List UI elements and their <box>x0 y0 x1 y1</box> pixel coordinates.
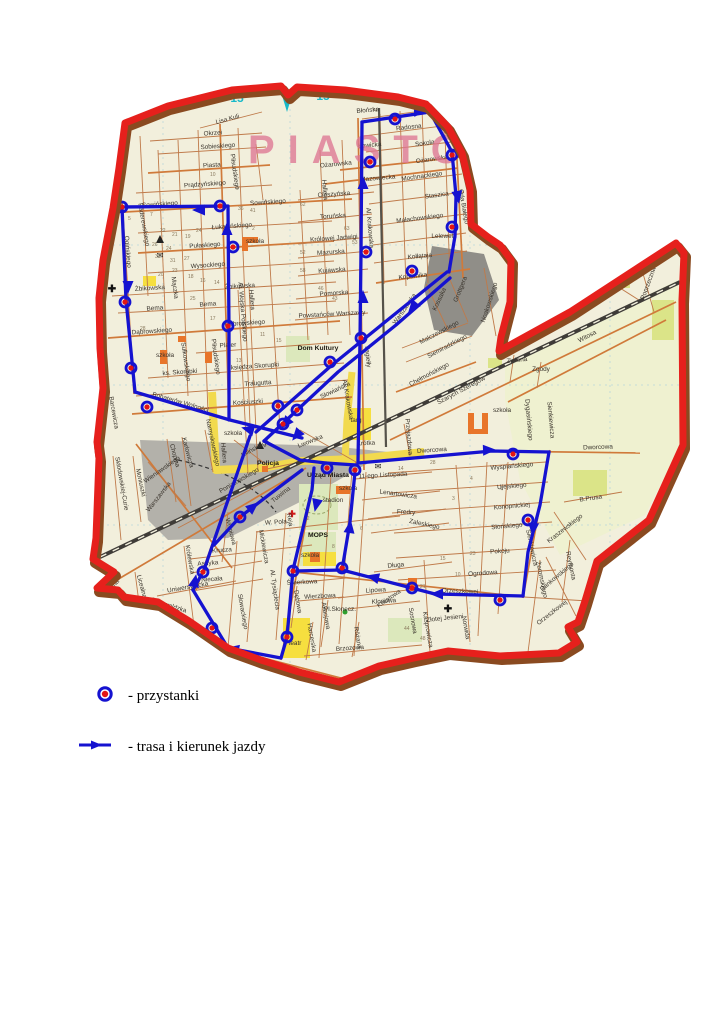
bus-stop-symbol-icon <box>96 685 114 708</box>
street-label: Okrzei <box>203 129 222 137</box>
house-number: 15 <box>276 338 282 344</box>
house-number: 44 <box>404 626 410 632</box>
house-number: 53 <box>352 240 358 246</box>
house-number: 36 <box>238 206 244 212</box>
bus-stop-center <box>510 451 515 456</box>
bus-stop-center <box>525 517 530 522</box>
bus-stop-center <box>409 268 414 273</box>
house-number: 17 <box>210 316 216 322</box>
house-number: 33 <box>155 254 161 260</box>
street-label: Dworcowa <box>583 443 614 451</box>
house-number: 20 <box>158 272 164 278</box>
street-label: Fredry <box>397 508 417 516</box>
street-label: Bema <box>146 304 164 312</box>
street-label: szkoła <box>493 407 512 414</box>
bus-stop-center <box>284 634 289 639</box>
legend-item-stops: - przystanki <box>96 685 199 708</box>
house-number: 8 <box>332 544 335 550</box>
street-label: stadion <box>323 497 344 504</box>
house-number: 58 <box>300 268 306 274</box>
bus-stop-center <box>230 244 235 249</box>
house-number: 6 <box>360 526 363 532</box>
poi-label: Policja <box>257 460 279 467</box>
bus-stop-center <box>409 585 414 590</box>
house-number: 18 <box>188 274 194 280</box>
house-number: 23 <box>172 268 178 274</box>
poi-label: Dom Kultury <box>298 345 339 352</box>
building <box>178 336 186 342</box>
building <box>468 429 488 434</box>
route-arrow-symbol-icon <box>78 738 114 757</box>
bus-stop-center <box>352 467 357 472</box>
house-number: 3 <box>452 496 455 502</box>
bus-stop-center <box>363 249 368 254</box>
house-number: 41 <box>250 208 256 214</box>
house-number: 22 <box>160 228 166 234</box>
house-number: 11 <box>260 332 265 338</box>
bus-stop-center <box>275 403 280 408</box>
house-number: 7 <box>150 212 153 218</box>
bus-stop-center <box>200 569 205 574</box>
bus-stop-center <box>449 224 454 229</box>
house-number: 5 <box>128 216 131 222</box>
bus-stop-center <box>324 465 329 470</box>
bus-stop-center <box>237 514 242 519</box>
bus-stop-center <box>392 116 397 121</box>
house-number: 48 <box>420 636 426 642</box>
street-label: szkoła <box>246 238 265 245</box>
house-number: 52 <box>300 250 306 256</box>
house-number: 25 <box>190 296 196 302</box>
post-office-icon: ✉ <box>375 462 382 471</box>
house-number: 62 <box>300 202 306 208</box>
street-label: szkoła <box>224 430 243 437</box>
house-number: 28 <box>430 460 436 466</box>
street-label: Bema <box>199 300 217 308</box>
church-cross-icon: ✚ <box>108 284 117 295</box>
piastow-town-map: ✚✚✚✉✉22211926243331272320181614752410426… <box>0 0 724 1024</box>
legend-item-route: - trasa i kierunek jazdy <box>78 738 265 757</box>
house-number: 31 <box>170 258 176 264</box>
house-number: 23 <box>470 551 476 557</box>
house-number: 10 <box>455 572 461 578</box>
map-title: PIASTÓW <box>248 126 526 172</box>
house-number: 15 <box>440 556 446 562</box>
bus-stop-center <box>497 597 502 602</box>
house-number: 19 <box>185 234 191 240</box>
bus-stop-center <box>209 625 214 630</box>
bus-stop-center <box>280 421 285 426</box>
street-label: Zgody <box>532 366 551 373</box>
street-label: Długa <box>387 561 405 569</box>
street-label: szkoła <box>301 552 320 559</box>
street-label: Piasta <box>203 161 222 169</box>
building <box>205 352 212 363</box>
bus-stop-center <box>367 159 372 164</box>
bus-stop-center <box>144 404 149 409</box>
street-label: Krucza <box>212 546 233 554</box>
legend-stops-label: - przystanki <box>128 688 199 705</box>
bus-stop-center <box>290 568 295 573</box>
house-number: 63 <box>344 226 350 232</box>
street-label: szkoła <box>156 352 175 359</box>
house-number: 24 <box>196 228 202 234</box>
page: ✚✚✚✉✉22211926243331272320181614752410426… <box>0 0 724 1024</box>
house-number: 26 <box>152 242 158 248</box>
street-label: Lipowa <box>366 586 387 594</box>
legend-route-label: - trasa i kierunek jazdy <box>128 739 265 756</box>
house-number: 2 <box>252 226 255 232</box>
house-number: 10 <box>210 172 216 178</box>
bus-stop-center <box>225 323 230 328</box>
house-number: 21 <box>172 232 178 238</box>
bus-stop-center <box>327 359 332 364</box>
house-number: 27 <box>184 256 190 262</box>
house-number: 4 <box>470 476 473 482</box>
bus-stop-center <box>358 335 363 340</box>
house-number: 16 <box>200 278 206 284</box>
bus-stop-center <box>122 299 127 304</box>
house-number: 14 <box>214 280 220 286</box>
bus-stop-center <box>128 365 133 370</box>
house-number: 24 <box>166 246 172 252</box>
poi-label: MOPS <box>308 532 328 539</box>
bus-stop-center <box>339 565 344 570</box>
bus-stop-center <box>449 152 454 157</box>
street-label: Pokoju <box>490 547 510 555</box>
bus-stop-center <box>294 407 299 412</box>
bus-stop-center <box>217 203 222 208</box>
